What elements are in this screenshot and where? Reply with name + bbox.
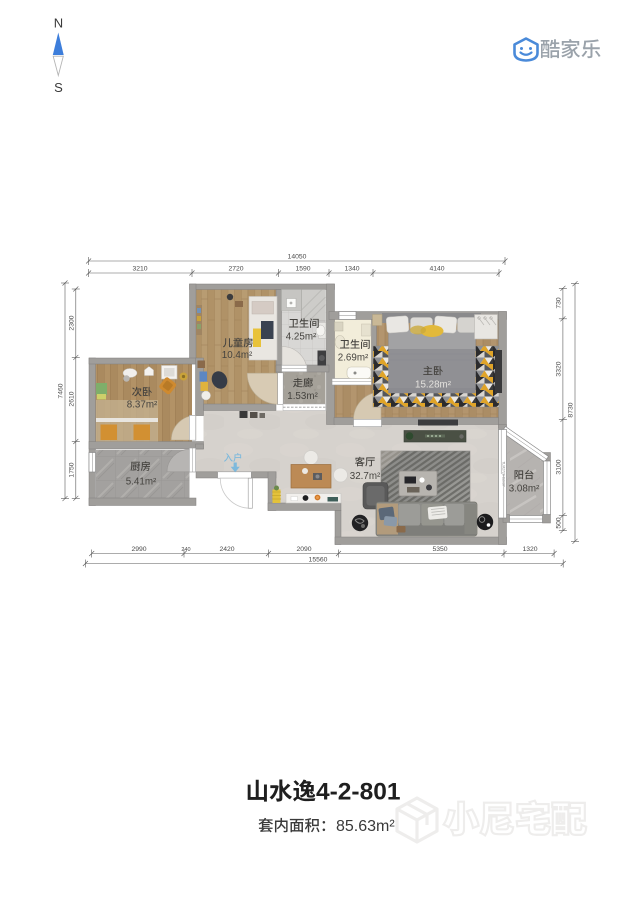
svg-text:85.63m²: 85.63m² bbox=[336, 818, 395, 835]
svg-text:240: 240 bbox=[181, 547, 190, 553]
svg-text:7460: 7460 bbox=[58, 383, 65, 398]
svg-text:1.53m²: 1.53m² bbox=[287, 391, 318, 402]
svg-text:1340: 1340 bbox=[344, 266, 359, 273]
svg-text:2720: 2720 bbox=[228, 266, 243, 273]
svg-text:3.08m²: 3.08m² bbox=[509, 484, 540, 495]
svg-text:3100: 3100 bbox=[555, 459, 562, 474]
svg-text:4-2-801: 4-2-801 bbox=[316, 779, 400, 806]
svg-text:N: N bbox=[54, 16, 63, 31]
svg-text:S: S bbox=[54, 80, 63, 95]
svg-text:3320: 3320 bbox=[555, 361, 562, 376]
svg-text:4.25m²: 4.25m² bbox=[286, 332, 317, 343]
svg-text:TLM2728 C2037: TLM2728 C2037 bbox=[502, 461, 506, 486]
svg-text:2300: 2300 bbox=[68, 315, 75, 330]
svg-text:3210: 3210 bbox=[132, 266, 147, 273]
svg-text:8730: 8730 bbox=[568, 402, 575, 417]
svg-text:5.41m²: 5.41m² bbox=[126, 477, 157, 488]
svg-text:15.28m²: 15.28m² bbox=[415, 380, 452, 391]
svg-text:4140: 4140 bbox=[429, 266, 444, 273]
svg-text:730: 730 bbox=[555, 297, 562, 309]
svg-text:2090: 2090 bbox=[296, 546, 311, 553]
svg-text:1320: 1320 bbox=[522, 546, 537, 553]
svg-text:8.37m²: 8.37m² bbox=[127, 400, 158, 411]
svg-text:500: 500 bbox=[555, 517, 562, 529]
svg-text:32.7m²: 32.7m² bbox=[350, 471, 381, 482]
svg-text:2.69m²: 2.69m² bbox=[338, 353, 369, 364]
svg-text:2610: 2610 bbox=[68, 391, 75, 406]
svg-text:5350: 5350 bbox=[432, 546, 447, 553]
svg-text:2420: 2420 bbox=[219, 546, 234, 553]
svg-text:15560: 15560 bbox=[309, 557, 328, 564]
svg-text:1750: 1750 bbox=[68, 462, 75, 477]
svg-text:1590: 1590 bbox=[295, 266, 310, 273]
svg-text:10.4m²: 10.4m² bbox=[222, 350, 253, 361]
svg-text:2990: 2990 bbox=[131, 546, 146, 553]
svg-text:14050: 14050 bbox=[288, 254, 307, 261]
